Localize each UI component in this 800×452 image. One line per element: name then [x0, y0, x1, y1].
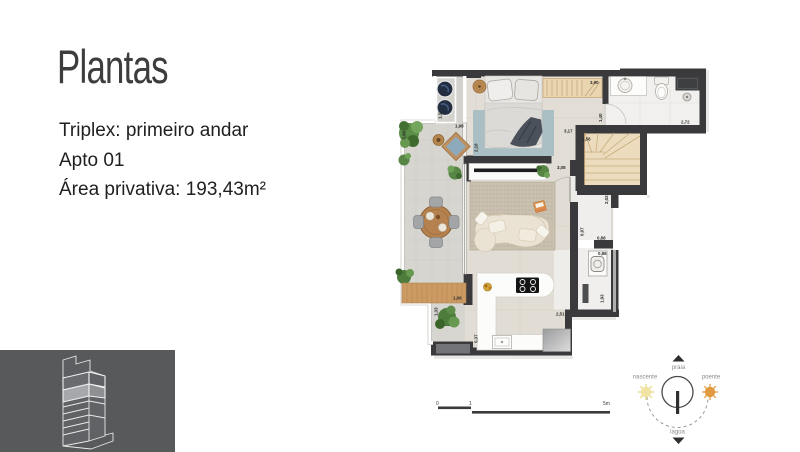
svg-text:poente: poente: [702, 375, 721, 381]
svg-text:2,16: 2,16: [474, 143, 479, 152]
svg-text:2,51: 2,51: [556, 312, 565, 317]
svg-text:2,72: 2,72: [681, 120, 690, 125]
svg-text:5m: 5m: [603, 401, 610, 407]
svg-text:nascente: nascente: [633, 375, 658, 381]
svg-text:1,56: 1,56: [582, 137, 591, 142]
svg-text:3,17: 3,17: [564, 129, 573, 134]
svg-text:1,33: 1,33: [434, 307, 439, 316]
svg-text:1,98: 1,98: [455, 124, 464, 129]
svg-text:3,08: 3,08: [557, 165, 566, 170]
svg-text:0: 0: [436, 401, 439, 407]
svg-text:5,37: 5,37: [474, 334, 479, 343]
svg-text:lagoa: lagoa: [670, 430, 685, 436]
svg-text:2,02: 2,02: [604, 195, 609, 204]
svg-text:1,93: 1,93: [600, 294, 605, 303]
svg-text:1,06: 1,06: [453, 296, 462, 301]
svg-text:1,40: 1,40: [598, 113, 603, 122]
svg-text:0,88: 0,88: [597, 236, 606, 241]
svg-text:0,97: 0,97: [580, 227, 585, 236]
svg-text:5,96: 5,96: [402, 130, 407, 139]
svg-text:1,38: 1,38: [438, 110, 443, 119]
svg-text:0,86: 0,86: [598, 251, 607, 256]
svg-text:1: 1: [469, 401, 472, 407]
svg-text:praia: praia: [672, 365, 686, 371]
svg-text:3,90: 3,90: [590, 80, 599, 85]
